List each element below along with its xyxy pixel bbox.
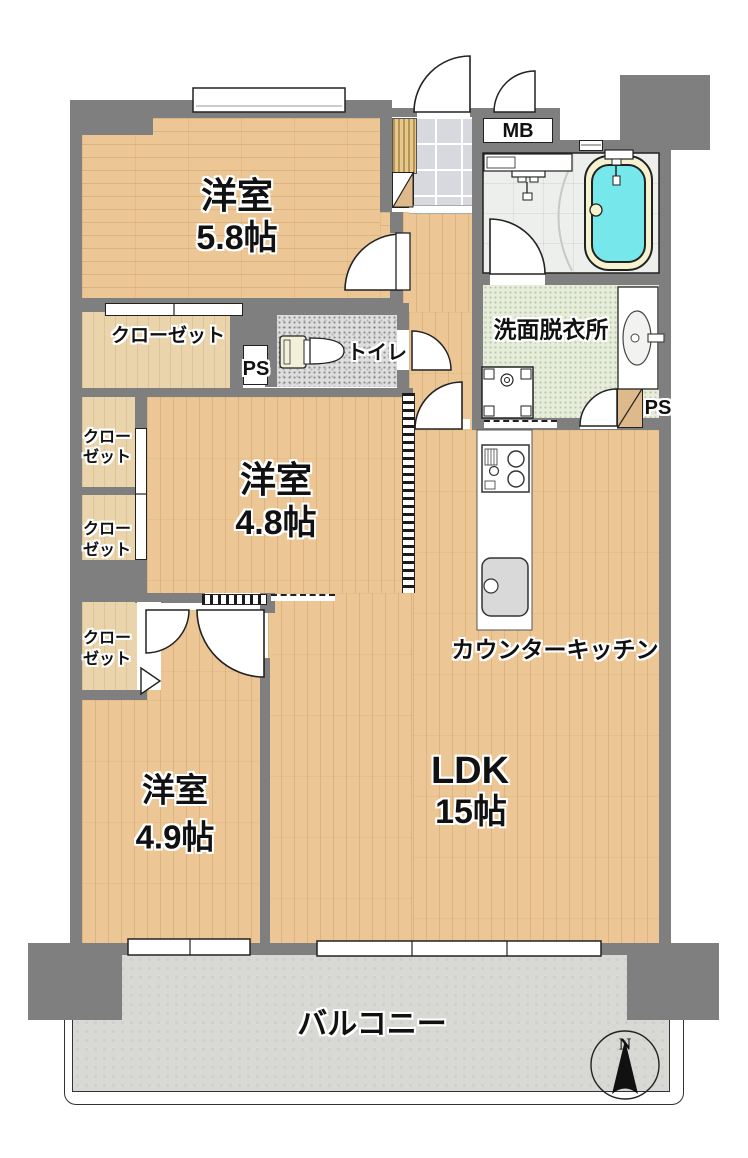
shoe-cabinet [392,118,417,174]
closet1-label-line2: ゼット [83,450,131,466]
shoe-cabinet-lower [392,172,414,208]
closet-main-floor [82,312,230,388]
ldk-floor-main [413,430,659,943]
entrance-door-opening [417,108,470,117]
wall-hallway-right [472,153,483,430]
vent-box [579,140,603,151]
pipe-space-washroom-label: PS [645,398,672,418]
sliding-door-track-bedroom2-right [402,393,415,593]
closet2-label-line2: ゼット [83,543,131,559]
balcony-label: バルコニー [297,1010,446,1040]
ldk-size-label: 15帖 [435,795,507,829]
wall-band-mid [70,388,413,397]
entrance-floor [409,117,472,207]
wall-toilet-top [265,303,409,315]
bedroom3-name-label: 洋室 [142,774,208,807]
toilet-label: トイレ [347,343,407,363]
compass-north-label: N [619,1036,631,1053]
bedroom1-name-label: 洋室 [201,178,273,214]
hallway-floor-lower [409,312,472,430]
wall-pillar-bottom-right [627,943,719,1020]
wall-closet3-bottom [70,690,147,700]
wall-entrance-top-left [380,108,417,117]
wall-bedroom2-left-top [135,397,147,428]
wall-pillar-top-right [620,75,710,150]
closet12-sliding-door [135,428,147,560]
closet3-label-line2: ゼット [83,652,131,668]
closet2-label-line1: クロー [83,522,131,538]
ldk-name-label: LDK [431,752,509,790]
meter-box-label: MB [502,121,533,141]
wall-entrance-left [380,117,392,212]
bedroom2-name-label: 洋室 [240,462,312,498]
floor-plan: 洋室 5.8帖 洋室 4.8帖 洋室 4.9帖 LDK 15帖 カウンターキッチ… [0,0,748,1158]
washroom-door-opening [580,419,617,429]
closet-sliding-door [105,303,243,316]
wall-bottom [70,943,671,955]
meterbox-door-arc [494,71,535,112]
bedroom-4-9-vestibule-floor [147,610,260,700]
wall-bedroom1-right-a [390,212,403,233]
closet3-door-area [137,602,161,690]
pipe-space-toilet-label: PS [243,359,270,379]
wall-right [659,150,671,955]
bedroom3-size-label: 4.9帖 [136,821,215,854]
bathroom-door-opening [490,273,545,285]
ldk-floor-lower [268,593,413,943]
wall-ps-left [230,345,243,388]
washroom-dashed-boundary [484,420,557,428]
wall-left [70,100,82,955]
closet3-label-line1: クロー [83,631,131,647]
washroom-label: 洗面脱衣所 [494,319,609,342]
wall-pillar-bottom-left [28,943,122,1020]
open-boundary-dashed [271,594,335,601]
entrance-door-arc [414,56,470,112]
wall-bedroom3-right [260,658,270,943]
closet-main-label: クローゼット [111,327,225,346]
pipe-space-washroom-box [617,388,643,428]
closet1-label-line1: クロー [83,430,131,446]
bedroom1-size-label: 5.8帖 [196,221,277,255]
kitchen-label: カウンターキッチン [452,639,659,662]
bathroom-floor [483,153,659,273]
wall-top [70,100,392,118]
wall-toilet-right-a [397,312,409,330]
hallway-floor-upper [403,212,472,312]
sliding-door-track-bedroom2-bottom [202,594,267,605]
ldk-door-opening [413,419,470,429]
wall-ps-top [230,312,268,345]
entrance-step [409,205,472,214]
wall-closet1-closet2 [77,487,135,495]
bedroom2-size-label: 4.8帖 [235,506,316,540]
